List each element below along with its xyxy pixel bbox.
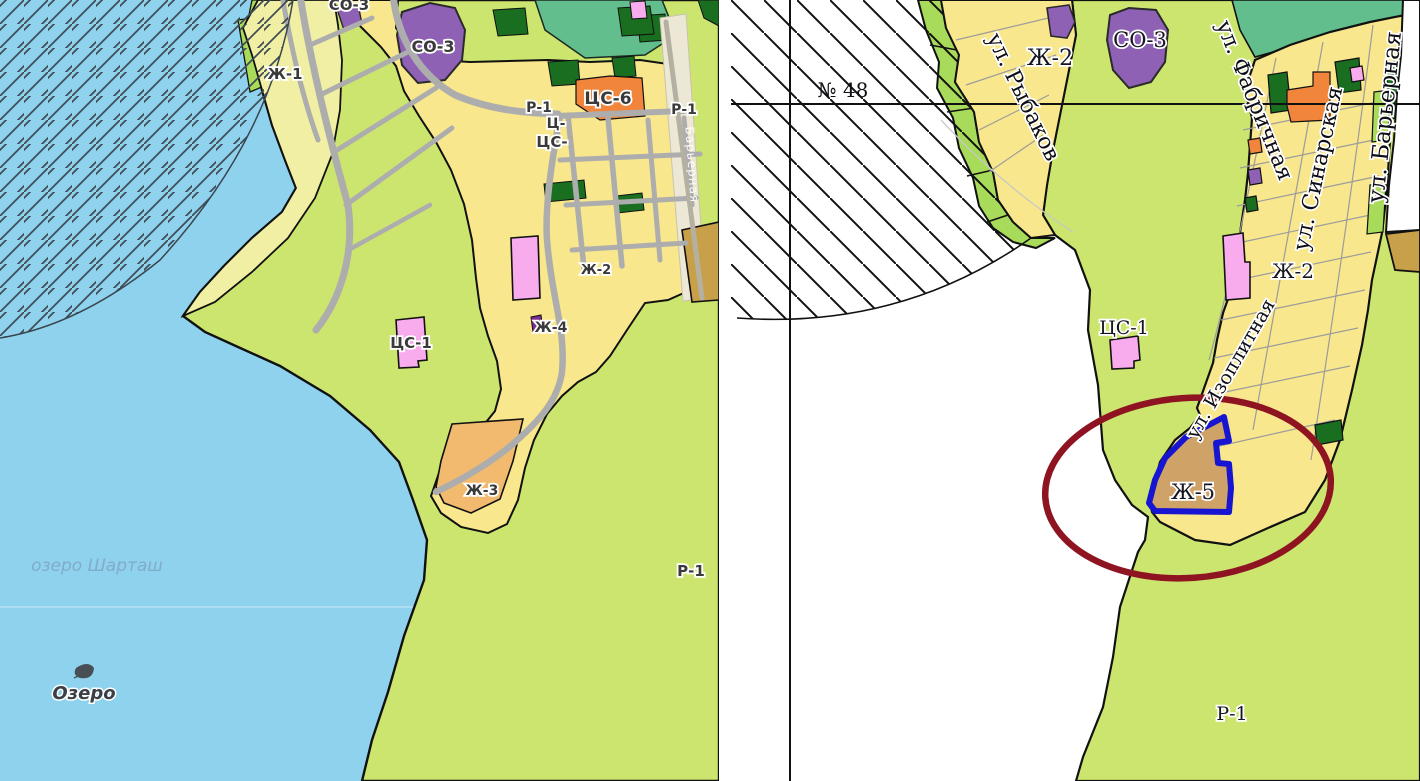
zone-label-r1-edge: Р-1: [671, 102, 697, 118]
right-map-canvas[interactable]: № 48 Ж-2 СО-3 ЦС-1 Ж-2 Ж-5 Р-1 ул. Рыбак…: [731, 0, 1420, 781]
zone-label-zh3: Ж-3: [466, 483, 499, 499]
circle-number-label: № 48: [818, 78, 869, 102]
zone-label-zh2: Ж-2: [581, 263, 611, 278]
zone-label-tss: ЦС-: [536, 133, 567, 151]
zone-label-zh4: Ж-4: [535, 320, 568, 336]
lake-caption-label: Озеро: [52, 683, 115, 704]
right-map-panel[interactable]: № 48 Ж-2 СО-3 ЦС-1 Ж-2 Ж-5 Р-1 ул. Рыбак…: [731, 0, 1420, 781]
zone-label-so3-top: СО-3: [329, 0, 369, 14]
zone-label-tss6: ЦС-6: [584, 89, 631, 109]
zone-label-zh5: Ж-5: [1171, 480, 1215, 504]
zone-label-r1-upper: Р-1: [526, 100, 552, 116]
pink-parcel-top: [630, 1, 647, 19]
zone-label-zh1: Ж-1: [267, 65, 302, 83]
zone-label-so3: СО-3: [411, 37, 454, 56]
zone-label-r1: Р-1: [1216, 703, 1247, 725]
pink-parcel-rect: [511, 236, 540, 300]
left-map-canvas[interactable]: СО-3 Ж-1 СО-3 Р-1 Ц- ЦС- ЦС-6 Р-1 Ж-2 Ж-…: [0, 0, 719, 781]
zone-label-ts: Ц-: [547, 116, 566, 132]
zone-label-tss1: ЦС-1: [1099, 317, 1149, 339]
zone-label-tss1: ЦС-1: [390, 334, 432, 352]
lake-name-label: озеро Шарташ: [31, 556, 163, 576]
zone-label-zh2: Ж-2: [1272, 259, 1314, 283]
zone-label-zh2-nw: Ж-2: [1027, 46, 1073, 71]
zoning-map-comparison: СО-3 Ж-1 СО-3 Р-1 Ц- ЦС- ЦС-6 Р-1 Ж-2 Ж-…: [0, 0, 1420, 781]
zone-label-r1-south: Р-1: [677, 562, 705, 580]
zone-label-so3: СО-3: [1113, 28, 1167, 52]
left-map-panel[interactable]: СО-3 Ж-1 СО-3 Р-1 Ц- ЦС- ЦС-6 Р-1 Ж-2 Ж-…: [0, 0, 719, 781]
